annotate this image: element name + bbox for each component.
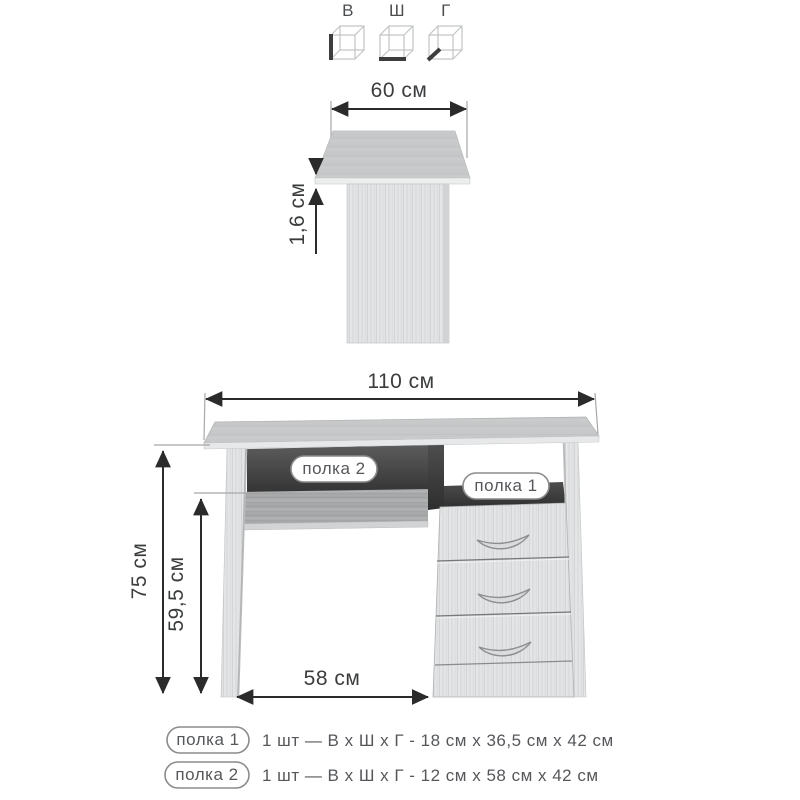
underdesk-width-label: 58 см [304,667,361,690]
drawer-pedestal [433,503,574,697]
extension-line [204,393,205,440]
cube-width-label: Ш [389,1,405,20]
cube-height-label: В [342,1,354,20]
height-cube-icon [331,26,364,60]
desk-front-view: 110 см [128,370,599,697]
legend-shelf2-desc: 1 шт — В х Ш х Г - 12 см х 58 см х 42 см [262,766,599,785]
shelf1-badge-label: полка 1 [474,476,537,495]
shelf2-badge-label: полка 2 [302,459,365,478]
furniture-dimension-diagram: В Ш Г 60 см [0,0,800,800]
side-panel-shade [443,184,449,343]
desk-side-view: 60 см 1,6 см [286,79,470,343]
extension-line [595,393,598,434]
total-height-label: 75 см [128,543,151,600]
legend-row-shelf2: полка 2 1 шт — В х Ш х Г - 12 см х 58 см… [165,762,599,788]
top-thickness-label: 1,6 см [286,183,309,246]
depth-cube-icon [428,26,462,60]
desktop-top-face-side [315,131,470,178]
width-cube-icon [379,26,413,59]
underdesk-height-label: 59,5 см [165,556,188,631]
legend-shelf2-badge: полка 2 [175,765,238,784]
side-panel [347,184,449,343]
diagram-canvas: В Ш Г 60 см [0,0,800,800]
top-depth-label: 60 см [371,79,428,102]
legend-shelf1-desc: 1 шт — В х Ш х Г - 18 см х 36,5 см х 42 … [262,731,614,750]
shelf1-badge: полка 1 [463,473,549,499]
legend-row-shelf1: полка 1 1 шт — В х Ш х Г - 18 см х 36,5 … [167,727,614,753]
legend-shelf1-badge: полка 1 [176,730,239,749]
total-width-label: 110 см [367,370,434,393]
legend: полка 1 1 шт — В х Ш х Г - 18 см х 36,5 … [165,727,614,788]
dimension-cubes-key: В Ш Г [331,1,462,60]
depth-edge-highlight [428,49,440,60]
middle-partition [428,444,444,510]
shelf2-badge: полка 2 [291,456,377,482]
desktop-edge-side [315,178,470,184]
left-leg-panel [221,448,247,697]
front-apron [240,489,428,524]
cube-depth-label: Г [441,1,451,20]
